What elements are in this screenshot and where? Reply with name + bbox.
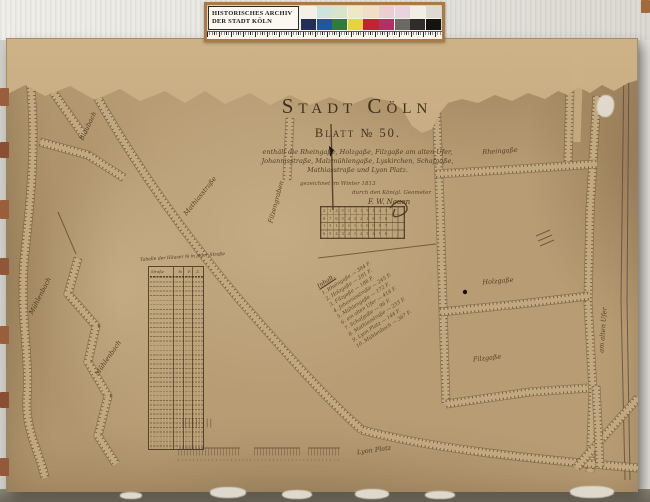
archive-name-label: HISTORISCHES ARCHIV DER STADT KÖLN [208,6,299,30]
color-patch [348,6,363,18]
color-patch [332,6,347,18]
paper-loss-patch [355,489,389,499]
measure-table-header: Straße [149,267,175,276]
paper-loss-patch [210,487,246,498]
archive-label-card: HISTORISCHES ARCHIV DER STADT KÖLN [204,2,445,42]
color-patch [395,19,410,31]
color-patch [301,19,316,31]
table-rule [192,267,193,449]
street-path [576,398,638,468]
tape-fragment [0,142,9,158]
archive-name-line1: HISTORISCHES ARCHIV [212,10,296,18]
color-patch [301,6,316,18]
calibration-ruler [207,31,442,39]
color-patch-row-top [301,6,441,18]
surveyor-signature: F. W. Nauen [368,198,410,206]
lot-grid-row: 8 7 6 5 4 3 2 1 8 7 6 [321,215,404,223]
color-calibration-bar [301,6,441,30]
card-content: HISTORISCHES ARCHIV DER STADT KÖLN [207,5,442,31]
measure-table-header: Z. [194,267,202,276]
color-patch [317,19,332,31]
measure-table-body [149,276,203,449]
table-rule [173,267,174,449]
drawn-note: gezeichnet im Winter 1813 [300,181,376,187]
map-description-line: Johannisstraße, Malzmühlengaße, Lyskirch… [245,157,470,165]
photo-background-right [637,40,650,490]
color-patch [348,19,363,31]
hatch-mark [536,230,554,246]
lot-grid-row: 1 3 1 2 1 1 1 0 9 8 7 [321,222,404,230]
color-patch [379,19,394,31]
minor-street-line [58,212,76,254]
ink-seal-dot [463,290,467,294]
color-patch [317,6,332,18]
color-patch [426,19,441,31]
paper-loss-patch [282,490,312,499]
tape-fragment [0,392,9,408]
paper-loss-patch [570,486,614,498]
table-rule [183,267,184,449]
color-patch-row-bottom [301,19,441,31]
tape-fragment [0,258,9,275]
color-patch [379,6,394,18]
tape-fragment [0,326,9,344]
paper-loss-patch [425,491,455,499]
tape-fragment [0,458,9,476]
street-path [40,142,124,178]
color-patch [410,6,425,18]
tape-fragment [641,0,650,13]
street-path [440,296,589,312]
street-path [568,88,570,164]
surveyor-line: durch den Königl. Geometer [352,190,431,196]
measure-table: Straße№F.Z. [148,266,204,450]
map-description-line: Mathiasstraße und Lyon Platz. [245,166,470,174]
color-patch [426,6,441,18]
tape-fragment [0,200,9,219]
color-patch [332,19,347,31]
color-patch [410,19,425,31]
archival-map-photo: Stadt Cöln Blatt № 50. enthält die Rhein… [0,0,650,502]
sheet-margin-line [627,58,630,480]
map-description-line: enthält die Rheingaße, Holzgaße, Filzgaß… [245,148,470,156]
archive-name-line2: DER STADT KÖLN [212,18,296,26]
paper-loss-patch [120,492,142,499]
map-title: Stadt Cöln [262,94,452,119]
color-patch [363,6,378,18]
sheet-number: Blatt № 50. [268,126,448,141]
color-patch [363,19,378,31]
tape-fragment [0,88,9,106]
lot-grid-row: 2 1 4 5 1 2 1 5 1 4 3 [321,207,404,215]
color-patch [395,6,410,18]
